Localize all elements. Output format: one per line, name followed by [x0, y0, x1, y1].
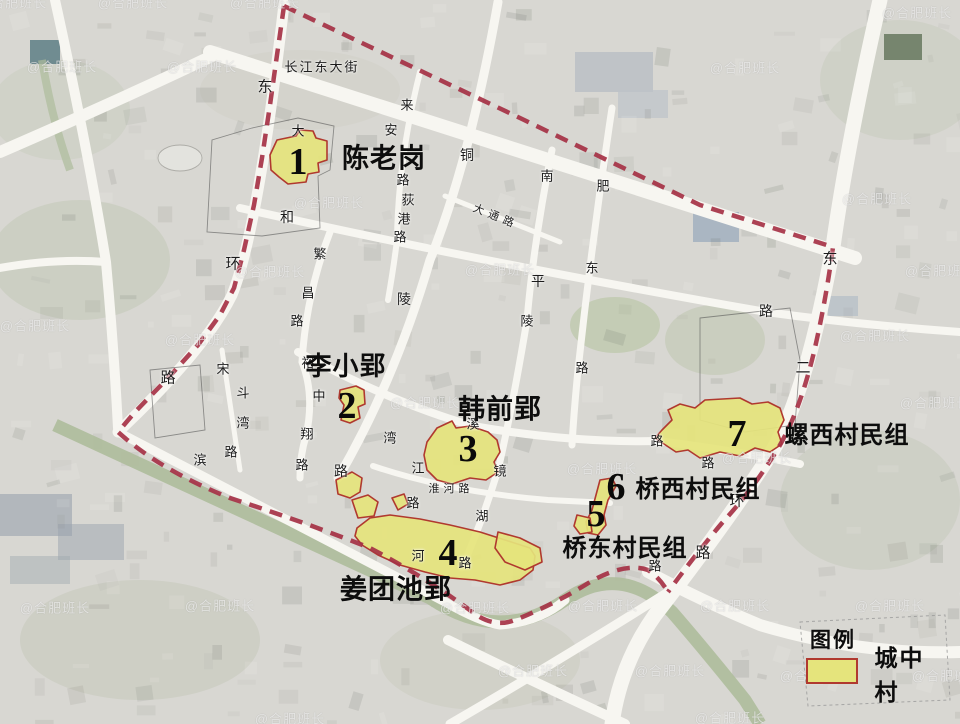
site-4-polygon-nw2 — [352, 495, 378, 518]
site-4-polygon-small — [392, 494, 408, 510]
legend-item-label: 城中村 — [875, 639, 932, 707]
terrain-patches — [0, 20, 960, 710]
site-5-polygon — [574, 515, 592, 534]
satellite-basemap — [0, 0, 960, 724]
map-canvas: 长江东大街东环路大来安路荻港路铜陵路大通路和平路南陵镜湖路肥东路繁昌路裕溪路中翔… — [0, 0, 960, 724]
site-2-polygon — [339, 386, 365, 423]
site-7-polygon — [655, 398, 784, 458]
legend-title: 图例 — [810, 624, 856, 654]
urban-village-swatch — [806, 658, 858, 684]
parcel-outlines — [150, 118, 800, 438]
